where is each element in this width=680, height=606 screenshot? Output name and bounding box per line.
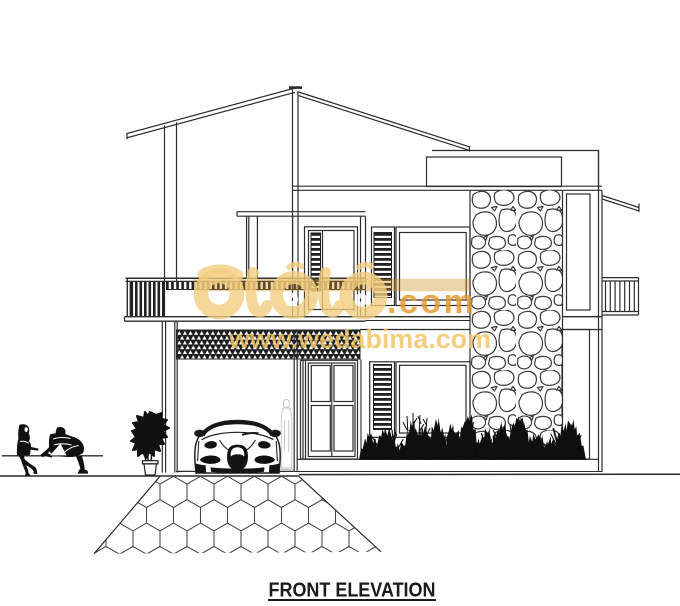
svg-text:FRONT ELEVATION: FRONT ELEVATION <box>269 579 436 602</box>
svg-text:www.wedabima.com: www.wedabima.com <box>228 324 491 354</box>
svg-text:.com: .com <box>387 283 476 321</box>
